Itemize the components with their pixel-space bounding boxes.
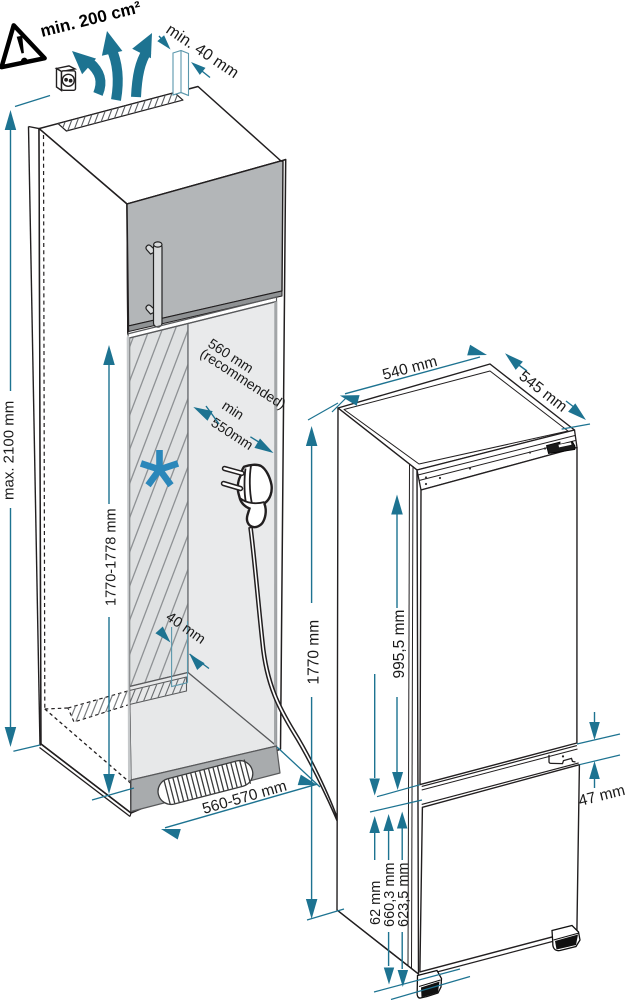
svg-text:1770-1778 mm: 1770-1778 mm bbox=[104, 508, 120, 606]
svg-text:max. 2100 mm: max. 2100 mm bbox=[1, 401, 18, 500]
svg-text:1770 mm: 1770 mm bbox=[306, 620, 323, 685]
svg-text:623,5 mm: 623,5 mm bbox=[396, 863, 412, 927]
svg-text:995,5 mm: 995,5 mm bbox=[391, 610, 408, 679]
